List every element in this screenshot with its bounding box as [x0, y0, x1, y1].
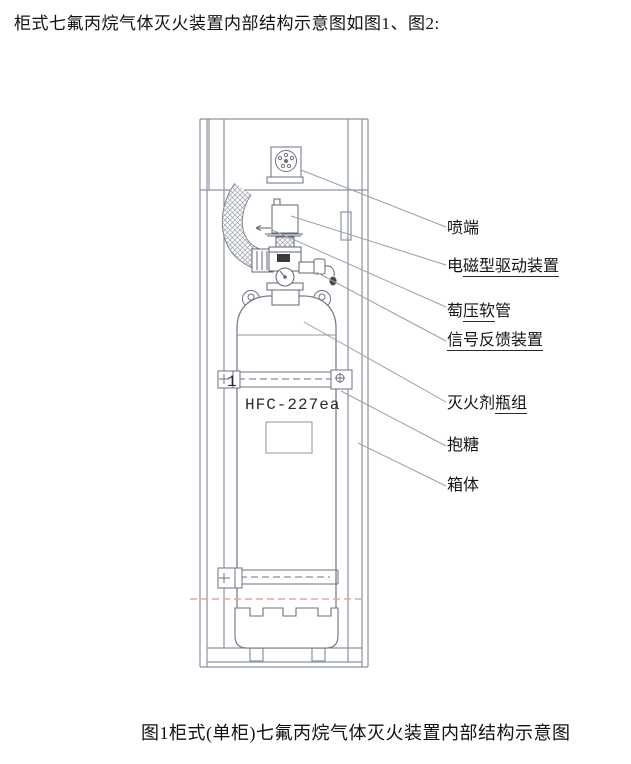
cylinder-label-plate [266, 422, 312, 453]
signal-feedback-device [299, 259, 337, 286]
label-cabinet-body: 箱体 [447, 477, 479, 495]
figure-caption: 图1柜式(单柜)七氟丙烷气体灭火装置内部结构示意图 [141, 719, 571, 745]
leader-nozzle [301, 170, 446, 227]
label-pressure-hose: 萄压软管 [447, 303, 511, 321]
clamp-marker-number: 1 [227, 373, 237, 391]
cabinet-schematic-drawing [0, 0, 631, 764]
label-clamp-band: 抱糖 [447, 437, 479, 455]
label-agent-cylinder-group: 灭火剂瓶组 [447, 395, 527, 413]
cylinder-base-skirt [235, 608, 338, 648]
nozzle-head [267, 147, 303, 183]
agent-cylinder [237, 290, 336, 608]
figure-1-diagram: HFC-227ea 1 喷端 电磁型驱动装置 萄压软管 信号反馈装置 灭火剂瓶组… [0, 0, 631, 764]
cylinder-agent-text: HFC-227ea [245, 396, 340, 414]
solenoid-drive-device [256, 199, 303, 247]
cylinder-neck [272, 290, 299, 305]
label-signal-feedback: 信号反馈装置 [447, 332, 543, 350]
label-solenoid-drive: 电磁型驱动装置 [447, 258, 559, 276]
pressure-gauge [276, 268, 294, 286]
leader-cabinet-body [358, 443, 446, 486]
label-nozzle: 喷端 [447, 220, 479, 238]
document-page: 柜式七氟丙烷气体灭火装置内部结构示意图如图1、图2: [0, 0, 631, 764]
leader-clamp [341, 391, 446, 446]
